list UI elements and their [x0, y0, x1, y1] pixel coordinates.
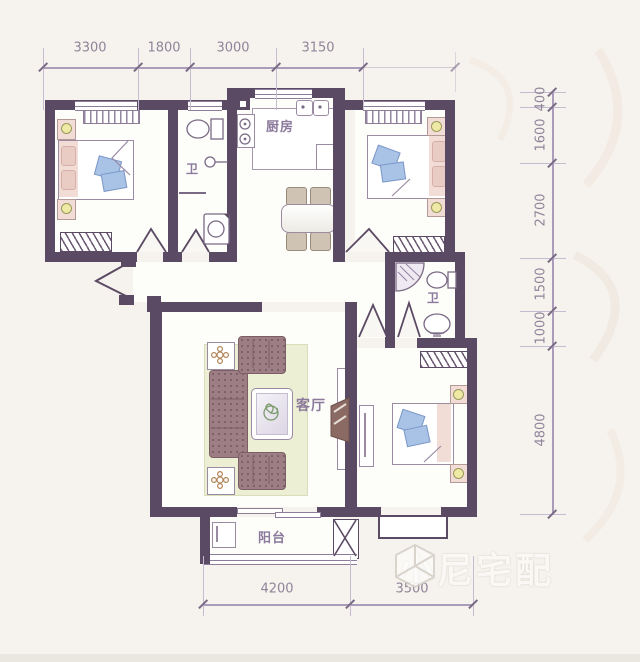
- plant-icon: [212, 347, 229, 364]
- dimension-label: 3300: [73, 41, 106, 56]
- room-label-bath2: 卫: [427, 289, 440, 306]
- extension-line: [363, 48, 364, 110]
- plant-icon: [212, 472, 229, 489]
- toilet-tank: [211, 119, 223, 139]
- dimension-label: 1000: [534, 311, 549, 344]
- extension-line: [520, 346, 566, 347]
- watermark-logo-icon: [392, 542, 438, 590]
- dimension-label: 4200: [260, 582, 293, 597]
- toilet-icon: [427, 272, 447, 288]
- flue-x: [334, 520, 356, 556]
- extension-line: [190, 48, 191, 110]
- dimension-label: 1600: [534, 118, 549, 151]
- stove-burner-dot: [244, 138, 247, 141]
- room-label-balcony: 阳台: [258, 527, 286, 546]
- sheet-fold: [424, 446, 441, 462]
- plant-icon: [264, 404, 278, 420]
- door-swing: [137, 229, 166, 252]
- dimension-line-right: [552, 92, 554, 514]
- door-swing: [346, 229, 389, 252]
- sink-drain: [318, 105, 321, 108]
- stove-burner-dot: [244, 123, 247, 126]
- room-label-kitchen: 厨房: [266, 116, 294, 135]
- extension-line: [455, 52, 456, 92]
- dimension-label: 1500: [534, 267, 549, 300]
- extension-line: [276, 48, 277, 110]
- toilet-tank: [448, 272, 456, 288]
- washbasin-icon: [424, 314, 450, 334]
- dimension-label: 3150: [301, 41, 334, 56]
- scan-edge: [0, 654, 640, 662]
- dimension-line-top: [43, 67, 363, 69]
- dimension-label: 2700: [534, 193, 549, 226]
- sofa-seams: [211, 340, 269, 484]
- entry-door-swing: [96, 263, 128, 296]
- extension-line: [203, 556, 204, 616]
- sheet-fold: [392, 179, 410, 196]
- watermark: 小尼宅配: [392, 542, 554, 594]
- toilet-icon: [187, 120, 209, 138]
- extension-line: [520, 258, 566, 259]
- sink-drain: [301, 105, 304, 108]
- dimension-label: 4800: [534, 413, 549, 446]
- faucet-icon: [205, 157, 215, 167]
- extension-line: [520, 163, 566, 164]
- extension-line: [43, 48, 44, 110]
- room-label-bath1: 卫: [186, 160, 199, 177]
- extension-line: [350, 556, 351, 616]
- door-swing: [398, 303, 420, 337]
- sheet-fold: [112, 141, 130, 175]
- room-label-living: 客厅: [296, 395, 326, 415]
- dimension-line-top-ext: [363, 67, 455, 68]
- dimension-line-bottom: [203, 604, 473, 606]
- extension-line: [520, 514, 566, 515]
- dimension-label: 3000: [216, 41, 249, 56]
- door-swing: [359, 305, 387, 337]
- extension-line: [138, 48, 139, 110]
- dimension-label: 400: [534, 87, 549, 112]
- dimension-label: 1800: [147, 41, 180, 56]
- floor-plan: 厨房 卫 卫 客厅 阳台 3300 1800 3000 3150 400 160…: [0, 0, 640, 662]
